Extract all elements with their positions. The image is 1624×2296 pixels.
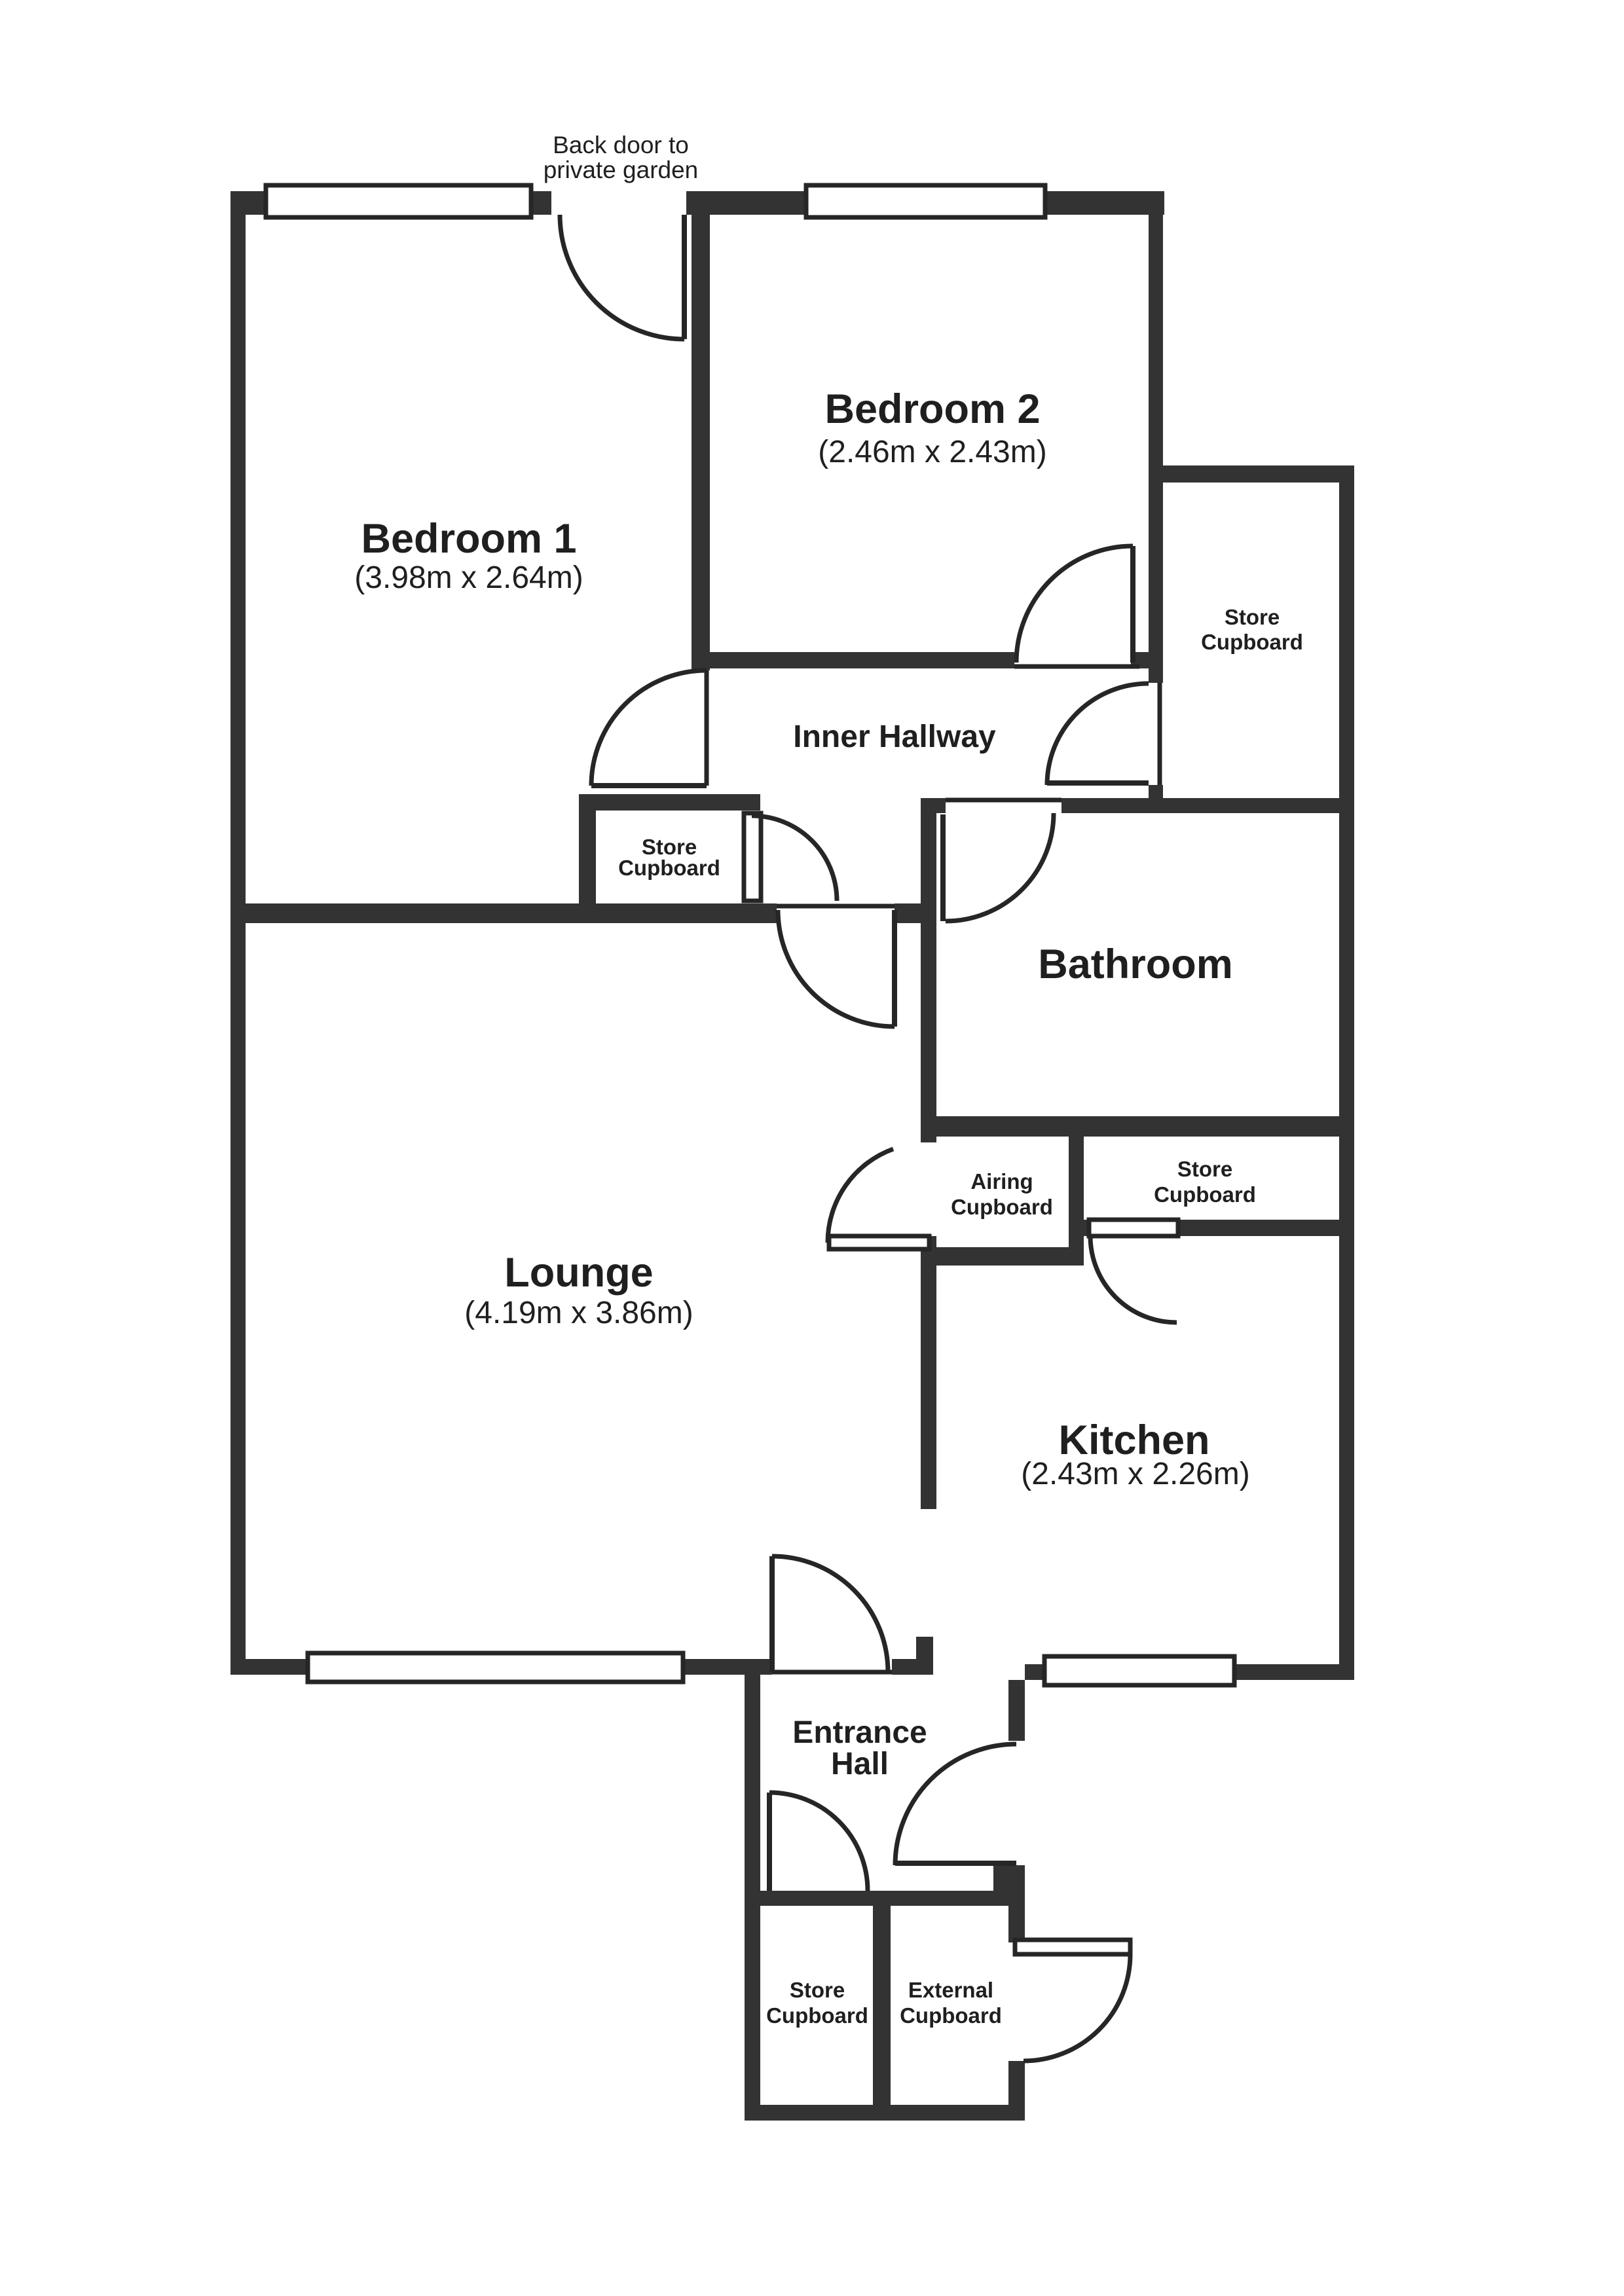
svg-text:External: External (908, 1978, 993, 2002)
svg-text:(3.98m x 2.64m): (3.98m x 2.64m) (354, 560, 583, 595)
svg-text:Bedroom 1: Bedroom 1 (361, 516, 576, 562)
svg-text:private garden: private garden (544, 156, 699, 183)
svg-text:(2.46m x 2.43m): (2.46m x 2.43m) (818, 435, 1046, 469)
svg-text:Entrance: Entrance (792, 1715, 927, 1750)
svg-text:Inner Hallway: Inner Hallway (793, 720, 996, 754)
svg-text:Store: Store (1177, 1157, 1232, 1181)
svg-text:(2.43m x 2.26m): (2.43m x 2.26m) (1021, 1457, 1249, 1491)
svg-text:Airing: Airing (970, 1169, 1033, 1194)
svg-text:Store: Store (790, 1978, 845, 2002)
svg-text:Bathroom: Bathroom (1038, 941, 1233, 987)
svg-text:Back door to: Back door to (553, 132, 689, 158)
svg-text:Cupboard: Cupboard (1154, 1182, 1256, 1207)
svg-text:Hall: Hall (831, 1747, 889, 1781)
svg-text:Cupboard: Cupboard (900, 2003, 1002, 2028)
svg-text:Lounge: Lounge (504, 1250, 653, 1296)
svg-text:Cupboard: Cupboard (618, 856, 720, 880)
svg-text:Store: Store (1225, 605, 1280, 629)
svg-text:Cupboard: Cupboard (951, 1195, 1053, 1219)
svg-text:Cupboard: Cupboard (1201, 630, 1303, 654)
svg-text:(4.19m x 3.86m): (4.19m x 3.86m) (464, 1296, 693, 1330)
svg-text:Bedroom 2: Bedroom 2 (824, 386, 1040, 432)
svg-text:Cupboard: Cupboard (766, 2003, 868, 2028)
